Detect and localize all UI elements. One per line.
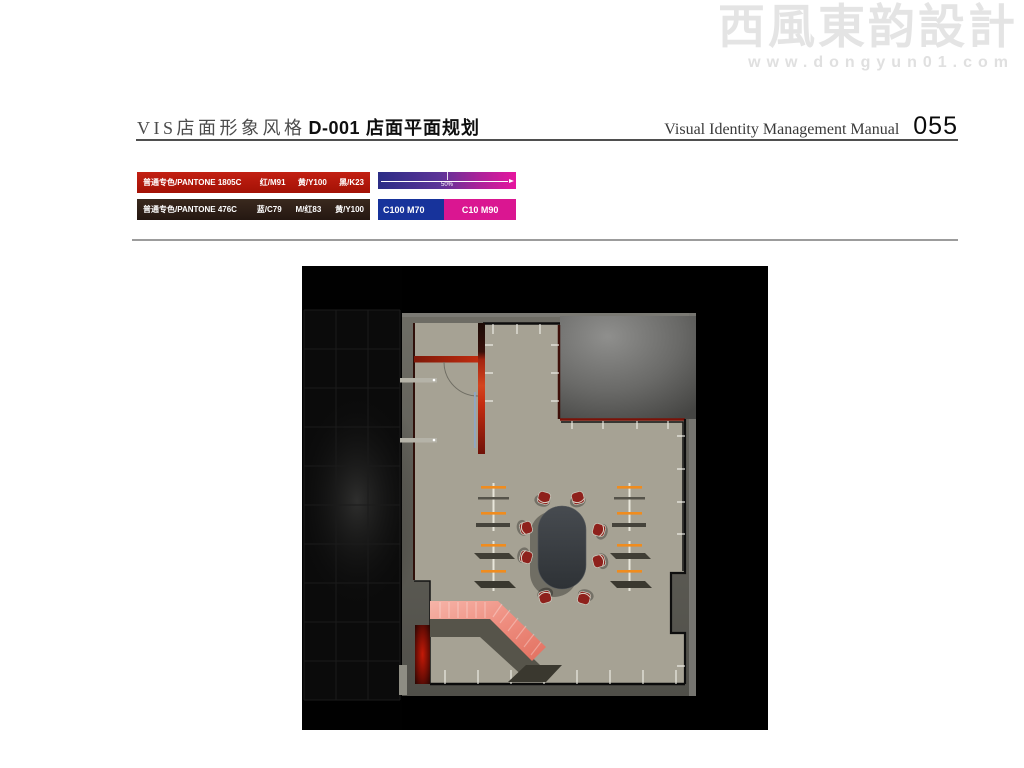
header-right: Visual Identity Management Manual 055 — [664, 112, 958, 141]
company-watermark: 西風東韵設計 www.dongyun01.com — [718, 0, 1018, 72]
manual-name: Visual Identity Management Manual — [664, 121, 899, 139]
swatch-value: M/红83 — [295, 204, 321, 215]
swatch-value: 黄/Y100 — [335, 204, 364, 215]
item-code: D-001 — [309, 118, 361, 139]
spot-color-swatch-red: 普通专色/PANTONE 1805C 红/M91 黄/Y100 黑/K23 — [137, 172, 370, 193]
floor-plan-render — [302, 266, 768, 730]
gradient-center-tick — [447, 172, 448, 180]
page-header: VIS店面形象风格 D-001 店面平面规划 Visual Identity M… — [137, 112, 958, 141]
swatch-value: 黄/Y100 — [298, 177, 327, 188]
company-logo: 西風東韵設計 — [718, 0, 1018, 54]
glass-panel — [474, 392, 476, 448]
swatch-value: 红/M91 — [260, 177, 286, 188]
floor-plan-panel — [302, 266, 768, 730]
series-label: VIS店面形象风格 — [137, 114, 306, 140]
swatch-value: 蓝/C79 — [257, 204, 282, 215]
red-glow-wall — [415, 625, 430, 684]
color-split-bar: C100 M70 C10 M90 — [378, 199, 516, 220]
center-table — [530, 506, 586, 597]
spot-color-swatch-brown: 普通专色/PANTONE 476C 蓝/C79 M/红83 黄/Y100 — [137, 199, 370, 220]
company-website: www.dongyun01.com — [718, 54, 1018, 72]
page-number: 055 — [913, 112, 958, 141]
header-divider — [136, 139, 958, 141]
section-divider — [132, 239, 958, 241]
manual-page: 西風東韵設計 www.dongyun01.com VIS店面形象风格 D-001… — [0, 0, 1024, 768]
exterior-light-area — [560, 316, 696, 419]
swatch-label: 普通专色/PANTONE 1805C — [143, 177, 241, 188]
split-bar-left: C100 M70 — [378, 199, 444, 220]
gradient-marker-label: 50% — [378, 182, 516, 188]
swatch-label: 普通专色/PANTONE 476C — [143, 204, 237, 215]
color-gradient-bar: 50% — [378, 172, 516, 189]
swatch-value: 黑/K23 — [339, 177, 364, 188]
split-bar-right: C10 M90 — [444, 199, 516, 220]
page-title: 店面平面规划 — [366, 114, 480, 140]
